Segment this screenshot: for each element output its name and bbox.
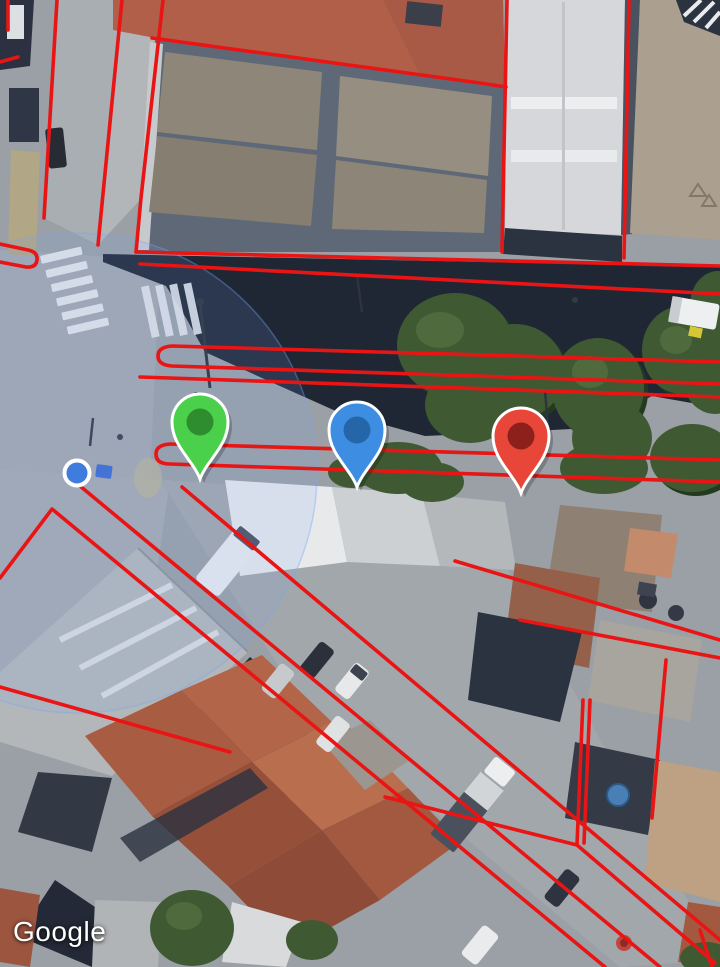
pin-inner-circle — [187, 409, 214, 436]
beige-roof — [630, 0, 720, 240]
google-watermark[interactable]: Google — [13, 916, 106, 948]
map-viewport[interactable]: Google — [0, 0, 720, 967]
user-location-dot — [65, 461, 90, 486]
corrugated-roof — [503, 0, 640, 262]
pin-inner-circle — [344, 417, 371, 444]
pin-inner-circle — [508, 423, 535, 450]
map-canvas — [0, 0, 720, 967]
